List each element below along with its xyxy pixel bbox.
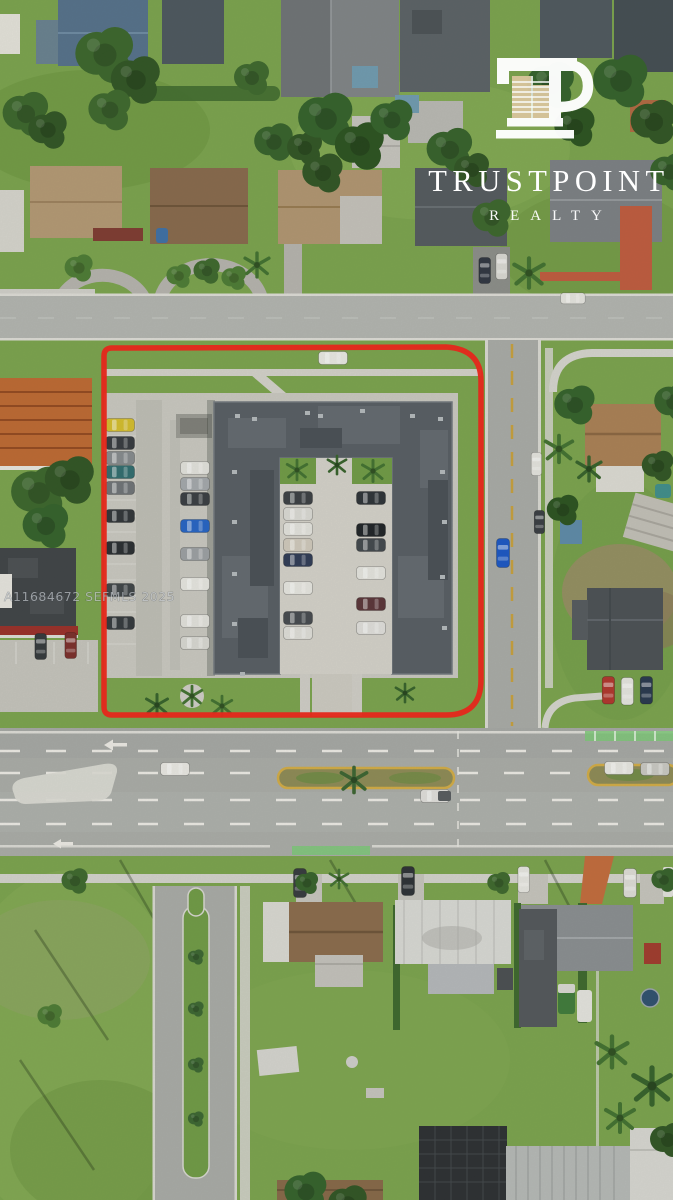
mls-watermark: A11684672 SEFMLS 2025 [4,589,175,604]
logo-brand-name: TRUSTPOINT [428,164,669,198]
logo-brand-subtitle: REALTY [489,208,613,224]
logo-buildings-icon [512,76,549,118]
aerial-listing-photo: TRUSTPOINT REALTY A11684672 SEFMLS 2025 [0,0,673,1200]
aerial-photo-scene: TRUSTPOINT REALTY A11684672 SEFMLS 2025 [0,0,673,1200]
